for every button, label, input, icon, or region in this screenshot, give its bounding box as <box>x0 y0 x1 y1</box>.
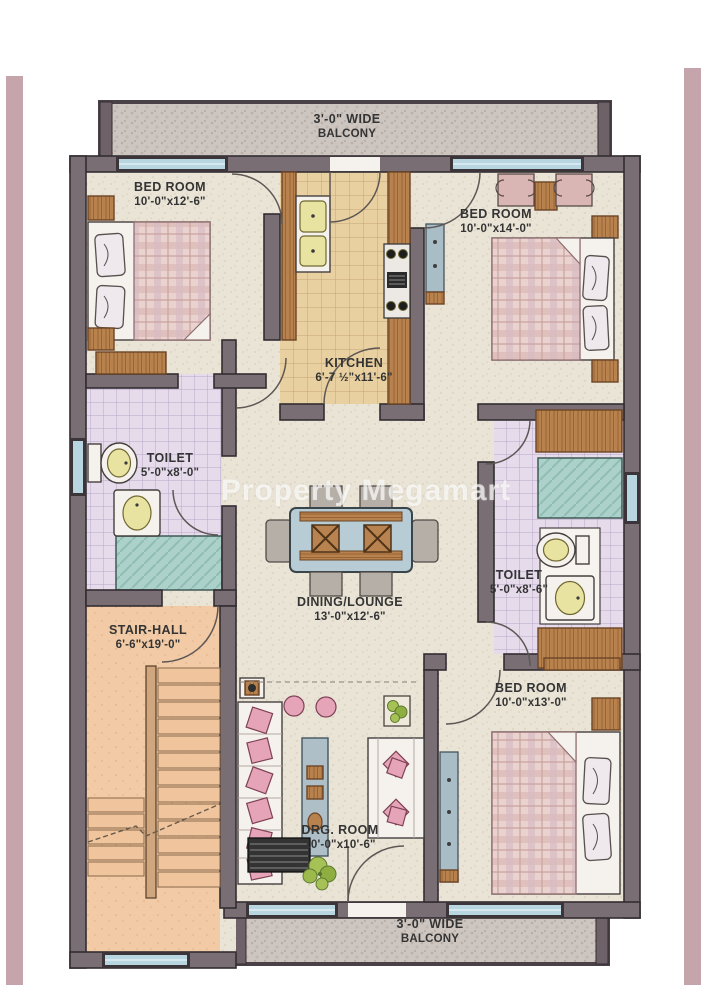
watermark-text: Property Megamart <box>221 474 511 508</box>
armchair <box>554 174 594 206</box>
dining-lounge-label: DINING/LOUNGE 13'-0"x12'-6" <box>297 595 403 625</box>
window-stair-hall <box>102 952 190 968</box>
wardrobe <box>592 698 620 730</box>
kitchen-counter-left <box>282 172 296 340</box>
nightstand <box>592 360 618 382</box>
kitchen-label: KITCHEN 6'-7 ½"x11'-6" <box>315 356 392 386</box>
dining-chair <box>360 572 392 596</box>
dresser <box>440 752 458 882</box>
drg-room-label: DRG. ROOM 10'-0"x10'-6" <box>301 823 378 853</box>
dining-chair <box>412 520 438 562</box>
bed <box>492 238 614 360</box>
kitchen-stove <box>384 244 410 318</box>
nightstand <box>88 328 114 350</box>
wall-unit <box>240 678 264 698</box>
toilet-left-label: TOILET 5'-0"x8'-0" <box>141 451 199 481</box>
balcony-bottom-label: 3'-0" WIDE BALCONY <box>396 917 463 947</box>
shower-right <box>538 458 622 518</box>
dresser <box>426 224 444 304</box>
dining-chair <box>266 520 292 562</box>
bedroom-top-right-label: BED ROOM 10'-0"x14'-0" <box>460 207 532 237</box>
dining-chair <box>310 572 342 596</box>
stool <box>316 697 336 717</box>
table-seat <box>364 525 391 552</box>
stair-treads-left <box>88 798 144 876</box>
window-toilet-left <box>70 438 86 496</box>
toilet-wc <box>88 443 137 483</box>
armchair <box>496 174 536 206</box>
nightstand <box>88 196 114 220</box>
planter <box>384 696 410 726</box>
bed <box>88 222 210 340</box>
balcony-door-opening-top <box>330 157 380 171</box>
stool <box>284 696 304 716</box>
balcony-door-opening-bottom <box>348 903 406 917</box>
wardrobe <box>536 410 622 452</box>
shower-left <box>116 536 222 590</box>
window-bedroom-top-right <box>450 156 584 172</box>
kitchen-sink <box>296 196 330 272</box>
table-seat <box>312 525 339 552</box>
nightstand <box>592 216 618 238</box>
floor-plan-page: 3'-0" WIDE BALCONY BED ROOM 10'-0"x12'-6… <box>0 0 707 985</box>
wardrobe <box>544 658 620 670</box>
stair-hall-label: STAIR-HALL 6'-6"x19'-0" <box>109 623 187 653</box>
wardrobe <box>96 352 166 374</box>
balcony-top-label: 3'-0" WIDE BALCONY <box>313 112 380 142</box>
washbasin <box>114 490 160 536</box>
dining-table <box>290 508 412 572</box>
bedroom-bottom-right-label: BED ROOM 10'-0"x13'-0" <box>495 681 567 711</box>
bed <box>492 732 620 894</box>
toilet-right-label: TOILET 5'-0"x8'-6" <box>490 568 548 598</box>
bedroom-top-left-label: BED ROOM 10'-0"x12'-6" <box>134 180 206 210</box>
window-bedroom-bottom <box>446 902 564 918</box>
window-drg-room <box>246 902 338 918</box>
toilet-wc <box>537 533 589 567</box>
window-bedroom-top-left <box>116 156 228 172</box>
window-toilet-right <box>624 472 640 524</box>
washbasin <box>546 576 594 620</box>
